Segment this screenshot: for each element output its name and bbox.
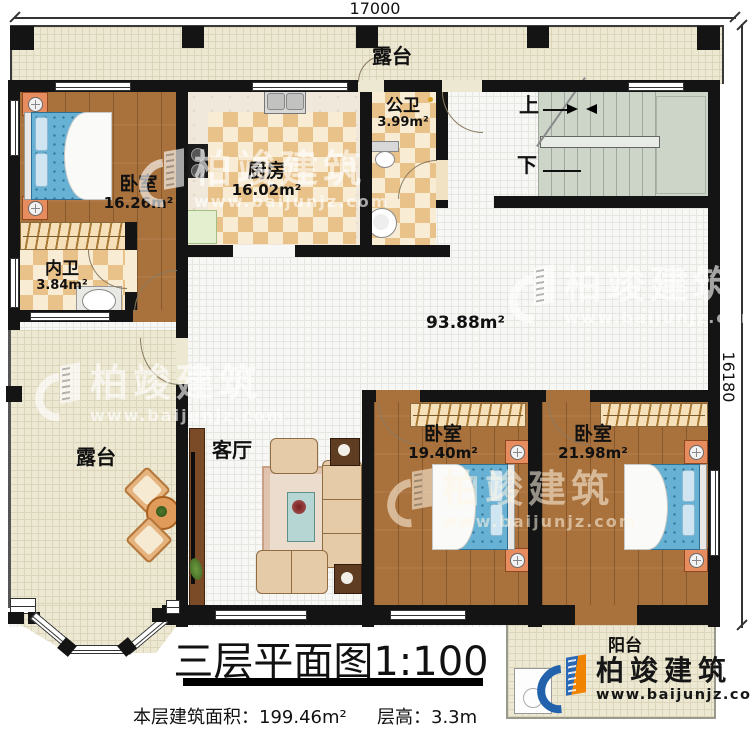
closet — [20, 222, 130, 250]
armchair — [270, 438, 318, 474]
column — [527, 26, 549, 48]
nightstand — [505, 440, 529, 464]
watermark-name: 柏竣建筑 — [442, 470, 637, 508]
door-opening — [233, 245, 295, 257]
lamp-icon — [689, 553, 704, 568]
room-name: 内卫 — [45, 259, 79, 279]
column — [6, 386, 22, 402]
pillow — [35, 117, 48, 151]
floor-area-stat: 本层建筑面积：199.46m² — [133, 703, 347, 729]
nightstand — [505, 548, 529, 572]
watermark: 柏竣建筑 www.baijunjz.com — [510, 266, 750, 327]
stair-rail — [540, 136, 660, 148]
pillow — [682, 470, 695, 502]
inner-bathroom-label: 内卫 3.84m² — [30, 260, 94, 294]
hall-area-label: 93.88m² — [418, 314, 513, 333]
door-opening — [546, 390, 590, 402]
watermark-url: www.baijunjz.com — [194, 192, 389, 211]
window — [390, 610, 466, 620]
brand-glyph-icon — [36, 364, 82, 422]
loveseat — [256, 550, 328, 594]
brand-name: 柏竣建筑 — [596, 656, 750, 687]
kitchen-counter — [185, 210, 217, 244]
pillow — [682, 504, 695, 536]
column — [182, 26, 204, 48]
lamp-icon — [28, 97, 43, 112]
terrace-left-label: 露台 — [60, 446, 132, 468]
watermark: 柏竣建筑 www.baijunjz.com — [388, 470, 637, 531]
door-opening — [436, 160, 448, 200]
floor-plan: 露台 卧室 16.26m² 厨房 16.02m² 公卫 3.99m² 内卫 3.… — [0, 0, 750, 729]
window — [10, 100, 19, 156]
tray-icon — [338, 444, 350, 456]
nightstand — [684, 440, 708, 464]
bay-post — [8, 612, 24, 624]
wall — [360, 245, 450, 257]
floor-height-stat: 层高：3.3m — [377, 703, 477, 729]
brand-glyph-icon — [510, 266, 556, 324]
room-area: 21.98m² — [548, 445, 638, 462]
sofa — [322, 460, 362, 568]
flowers — [292, 500, 306, 514]
bedroom-south-left-label: 卧室 19.40m² — [398, 424, 488, 462]
brand-logo-icon — [538, 656, 588, 714]
stair-arrow-icon — [543, 170, 581, 172]
kitchen-sink-basin — [267, 93, 285, 110]
terrace-top-label: 露台 — [357, 45, 427, 67]
window — [55, 82, 131, 91]
stairs-down-label: 下 — [512, 154, 542, 176]
brand-glyph-icon — [140, 150, 186, 208]
window — [30, 312, 110, 321]
brand-glyph-icon — [388, 470, 434, 528]
lamp-icon — [28, 201, 43, 216]
room-area: 19.40m² — [398, 445, 488, 462]
bay-post — [152, 608, 166, 622]
dimension-top: 17000 — [340, 0, 410, 18]
brand-logo: 柏竣建筑 www.baijunjz.com — [538, 656, 750, 714]
stair-arrow-icon — [543, 109, 567, 111]
watermark: 柏竣建筑 www.baijunjz.com — [36, 364, 285, 425]
brand-website: www.baijunjz.com — [596, 687, 750, 703]
lamp-icon — [510, 445, 525, 460]
stair-landing — [656, 96, 706, 194]
plant — [156, 506, 167, 517]
watermark-name: 柏竣建筑 — [90, 364, 285, 402]
watermark: 柏竣建筑 www.baijunjz.com — [140, 150, 389, 211]
balcony-door-opening — [575, 605, 637, 625]
room-area: 3.84m² — [30, 279, 94, 294]
nightstand — [684, 548, 708, 572]
bedroom-south-right-label: 卧室 21.98m² — [548, 424, 638, 462]
column — [10, 26, 34, 50]
watermark-url: www.baijunjz.com — [564, 308, 750, 327]
living-room-label: 客厅 — [196, 439, 268, 461]
dimension-right: 16180 — [719, 337, 737, 417]
terrace-edge — [8, 330, 11, 608]
stair-arrow-icon — [567, 104, 578, 114]
stairs-up-label: 上 — [514, 94, 544, 116]
window — [10, 258, 19, 308]
watermark-url: www.baijunjz.com — [442, 512, 637, 531]
room-area: 3.99m² — [371, 116, 435, 131]
watermark-name: 柏竣建筑 — [564, 266, 750, 304]
door-opening — [442, 80, 482, 92]
window — [215, 610, 307, 620]
column — [697, 26, 720, 50]
wall — [494, 196, 720, 208]
lamp-icon — [510, 553, 525, 568]
window — [628, 82, 684, 91]
room-name: 卧室 — [424, 423, 462, 445]
room-name: 公卫 — [386, 96, 420, 116]
kitchen-sink-basin — [286, 93, 304, 110]
dimension-line — [14, 17, 736, 19]
wall — [362, 390, 374, 627]
door-opening — [376, 390, 420, 402]
bay-window — [166, 600, 180, 614]
title-underline — [183, 678, 483, 686]
sink-basin — [373, 214, 389, 230]
watermark-name: 柏竣建筑 — [194, 150, 389, 188]
watermark-url: www.baijunjz.com — [90, 406, 285, 425]
window — [252, 82, 348, 91]
public-bathroom-label: 公卫 3.99m² — [371, 97, 435, 131]
window — [710, 470, 719, 556]
pillow — [35, 153, 48, 187]
lamp-icon — [689, 445, 704, 460]
room-name: 卧室 — [574, 423, 612, 445]
tray-icon — [341, 572, 353, 584]
stair-arrow-icon — [586, 104, 597, 114]
